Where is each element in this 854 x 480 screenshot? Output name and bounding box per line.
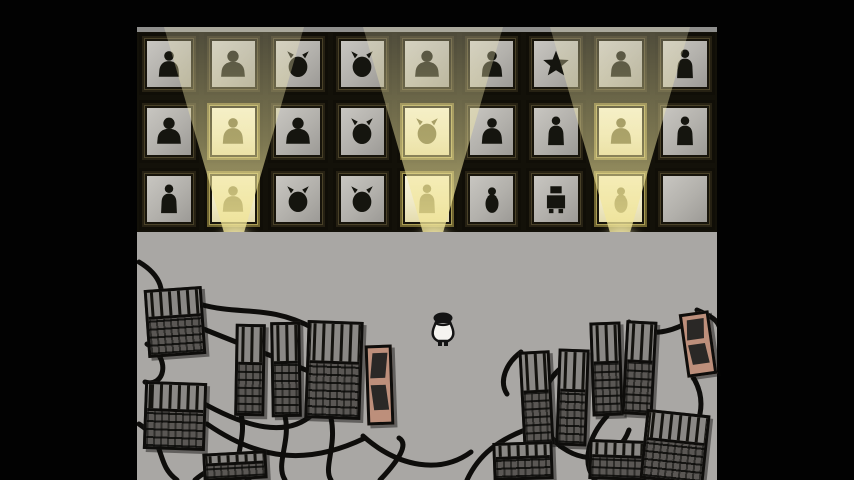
portrait-mat [597,39,645,89]
player-character [427,310,459,352]
server-rack [492,441,553,480]
server-rack [640,409,711,480]
portrait-mat [403,106,451,156]
portrait-mat [661,106,709,156]
portrait-mat [661,39,709,89]
portrait-mat [403,174,451,224]
portrait-silhouette-icon [216,112,250,150]
portrait-frame-r2-c2[interactable] [204,100,264,162]
portrait-frame-r2-c3[interactable] [268,100,328,162]
room-stage [137,0,717,480]
portrait-silhouette-icon [152,45,186,83]
server-rack [202,450,267,480]
portrait-mat [468,39,516,89]
portrait-frame-r2-c1[interactable] [139,100,199,162]
portrait-frame-r1-c1[interactable] [139,33,199,95]
portrait-silhouette-icon [668,112,702,150]
portrait-mat [145,106,193,156]
portrait-frame-r1-c4[interactable] [333,33,393,95]
portrait-mat [339,106,387,156]
portrait-mat [210,39,258,89]
portrait-frame-r1-c2[interactable] [204,33,264,95]
portrait-mat [468,106,516,156]
tan-device [365,345,395,426]
portrait-mat [339,174,387,224]
portrait-frame-r3-c4[interactable] [333,168,393,230]
portrait-frame-r1-c3[interactable] [268,33,328,95]
portrait-mat [468,174,516,224]
server-rack [143,381,207,451]
portrait-silhouette-icon [152,180,186,218]
portrait-silhouette-icon [345,45,379,83]
portrait-silhouette-icon [604,45,638,83]
portrait-frame-r3-c7[interactable] [526,168,586,230]
portrait-silhouette-icon [281,45,315,83]
portrait-silhouette-icon [668,45,702,83]
portrait-frame-r3-c2[interactable] [204,168,264,230]
portrait-frame-r3-c3[interactable] [268,168,328,230]
portrait-frame-r3-c1[interactable] [139,168,199,230]
portrait-silhouette-icon [410,180,444,218]
portrait-silhouette-icon [410,45,444,83]
portrait-mat [274,106,322,156]
server-rack [144,286,207,358]
portrait-mat [597,174,645,224]
server-rack [234,324,266,417]
portrait-silhouette-icon [475,45,509,83]
portrait-frame-r1-c9[interactable] [655,33,715,95]
portrait-silhouette-icon [281,180,315,218]
portrait-mat [532,174,580,224]
portrait-frame-r1-c6[interactable] [462,33,522,95]
portrait-mat [274,39,322,89]
portrait-frame-r2-c6[interactable] [462,100,522,162]
portrait-frame-r2-c8[interactable] [591,100,651,162]
portrait-frame-r3-c8[interactable] [591,168,651,230]
portrait-silhouette-icon [345,112,379,150]
portrait-silhouette-icon [604,180,638,218]
server-rack [519,350,555,445]
portrait-frame-r2-c7[interactable] [526,100,586,162]
portrait-silhouette-icon [539,180,573,218]
portrait-frame-r1-c5[interactable] [397,33,457,95]
portrait-silhouette-icon [281,112,315,150]
gallery-wall [137,27,717,232]
portrait-mat [274,174,322,224]
server-rack [270,322,302,418]
portrait-silhouette-icon [216,180,250,218]
portrait-mat [145,39,193,89]
portrait-frame-r3-c9[interactable] [655,168,715,230]
portrait-silhouette-icon [539,112,573,150]
wall-top-edge [137,27,717,32]
portrait-mat [403,39,451,89]
portrait-mat [532,39,580,89]
portrait-mat [597,106,645,156]
portrait-silhouette-icon [475,112,509,150]
server-rack [622,320,658,415]
server-room-floor [137,232,717,480]
portrait-mat [532,106,580,156]
portrait-grid [139,33,715,230]
portrait-silhouette-icon [604,112,638,150]
portrait-mat [145,174,193,224]
portrait-frame-r3-c5[interactable] [397,168,457,230]
empty-mat [661,174,709,224]
server-rack [304,320,363,420]
portrait-frame-r2-c9[interactable] [655,100,715,162]
portrait-mat [339,39,387,89]
portrait-frame-r1-c7[interactable] [526,33,586,95]
portrait-silhouette-icon [345,180,379,218]
portrait-frame-r2-c4[interactable] [333,100,393,162]
portrait-silhouette-icon [539,45,573,83]
server-rack [589,321,623,416]
portrait-frame-r3-c6[interactable] [462,168,522,230]
portrait-frame-r2-c5[interactable] [397,100,457,162]
portrait-mat [210,106,258,156]
portrait-silhouette-icon [475,180,509,218]
server-rack [588,439,647,480]
server-rack [555,348,589,446]
portrait-silhouette-icon [410,112,444,150]
game-screen [0,0,854,480]
portrait-silhouette-icon [152,112,186,150]
portrait-mat [210,174,258,224]
portrait-frame-r1-c8[interactable] [591,33,651,95]
portrait-silhouette-icon [216,45,250,83]
